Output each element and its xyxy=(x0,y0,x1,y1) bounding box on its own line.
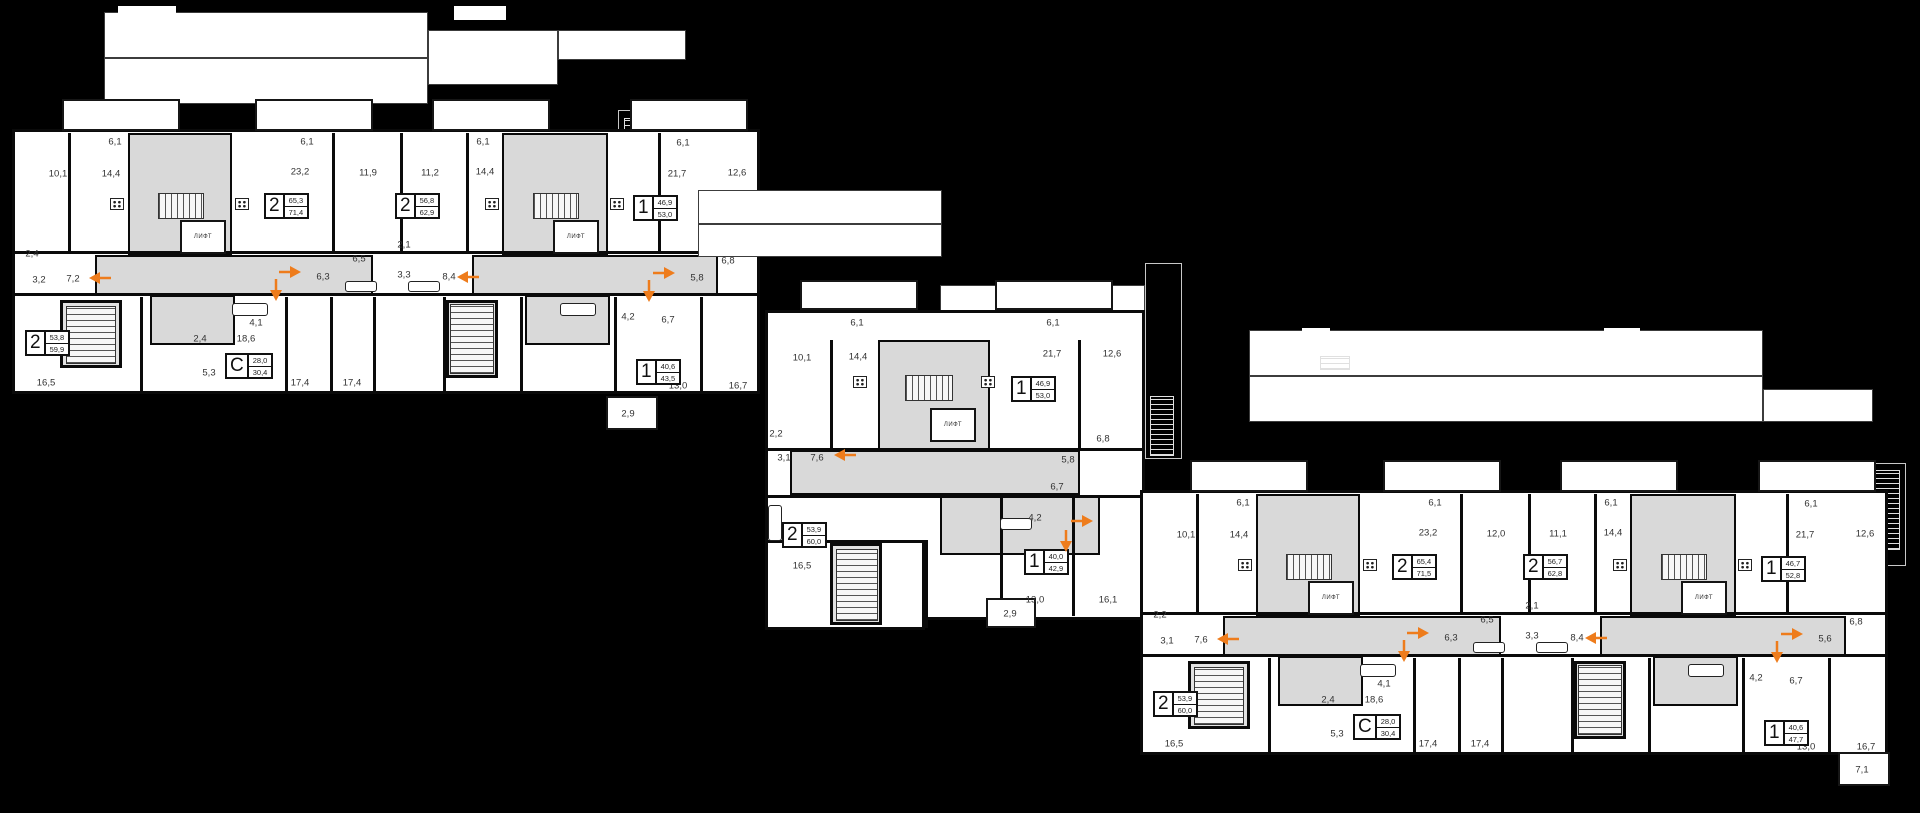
entrance-arrow-icon xyxy=(268,278,284,302)
room-area-label: 5,8 xyxy=(690,273,703,284)
balcony xyxy=(800,280,918,310)
room-area-label: 16,1 xyxy=(1099,595,1118,606)
lift-label: ЛИФТ xyxy=(1322,595,1340,601)
apartment-type: С xyxy=(227,355,247,377)
stove-icon xyxy=(1613,559,1627,571)
apartment-stat-box: 146,752,8 xyxy=(1761,556,1806,582)
room-area-label: 7,6 xyxy=(810,453,823,464)
apartment-type: 1 xyxy=(635,197,652,219)
room-area-label: 5,3 xyxy=(202,368,215,379)
bathtub-icon xyxy=(1688,664,1724,677)
stove-icon xyxy=(1238,559,1252,571)
room-area-label: 11,2 xyxy=(421,168,439,179)
wall xyxy=(1571,658,1574,755)
room-area-label: 6,7 xyxy=(1050,482,1063,493)
room-area-label: 17,4 xyxy=(343,378,362,389)
room-area-label: 4,2 xyxy=(1028,513,1041,524)
exterior-stair-ladder xyxy=(1320,356,1350,370)
roof-outline xyxy=(428,30,558,85)
wall xyxy=(1458,658,1461,755)
room-area-label: 16,5 xyxy=(793,561,812,572)
stove-icon xyxy=(981,376,995,388)
entrance-arrow-icon xyxy=(456,269,480,285)
room-area-label: 6,1 xyxy=(1046,318,1059,329)
white-bar xyxy=(454,6,506,20)
room-area-label: 4,1 xyxy=(1377,679,1390,690)
bathtub-icon xyxy=(232,303,268,316)
stairs-icon xyxy=(158,193,204,219)
wall xyxy=(1460,494,1463,614)
apartment-area-living: 28,0 xyxy=(1377,716,1400,728)
apartment-area-living: 56,8 xyxy=(416,195,439,207)
room-area-label: 7,1 xyxy=(1855,765,1868,776)
stove-icon xyxy=(485,198,499,210)
apartment-area-total: 62,8 xyxy=(1544,568,1567,579)
bathtub-icon xyxy=(560,303,596,316)
room-area-label: 23,2 xyxy=(291,167,310,178)
apartment-type: 1 xyxy=(1026,551,1043,573)
entrance-arrow-icon xyxy=(833,447,857,463)
lift-box: ЛИФТ xyxy=(1681,581,1727,615)
entrance-arrow-icon xyxy=(1584,630,1608,646)
wall xyxy=(330,297,333,394)
room-area-label: 3,2 xyxy=(32,275,45,286)
balcony xyxy=(1190,460,1308,492)
lift-label: ЛИФТ xyxy=(567,234,585,240)
room-area-label: 14,4 xyxy=(476,167,495,178)
apartment-type: 1 xyxy=(1763,558,1780,580)
stairs-icon xyxy=(836,549,878,621)
roof-outline xyxy=(1249,376,1763,422)
apartment-type: 2 xyxy=(1525,556,1542,578)
room-area-label: 12,0 xyxy=(1487,529,1506,540)
bathtub-icon xyxy=(408,281,440,292)
room-area-label: 2,2 xyxy=(769,429,782,440)
lift-box: ЛИФТ xyxy=(553,220,599,254)
room-area-label: 2,1 xyxy=(1525,601,1538,612)
room-area-label: 17,4 xyxy=(1471,739,1490,750)
balcony xyxy=(995,280,1113,310)
room-area-label: 6,8 xyxy=(721,256,734,267)
room-area-label: 17,4 xyxy=(1419,739,1438,750)
room-area-label: 16,5 xyxy=(37,378,56,389)
apartment-stat-box: 265,471,5 xyxy=(1392,554,1437,580)
roof-outline xyxy=(698,190,942,224)
stairs-icon xyxy=(905,375,953,401)
room-area-label: 2,9 xyxy=(621,409,634,420)
apartment-area-total: 52,8 xyxy=(1782,570,1805,581)
room-area-label: 17,4 xyxy=(291,378,310,389)
room-area-label: 14,4 xyxy=(849,352,868,363)
stairs-icon xyxy=(1661,554,1707,580)
apartment-area-living: 53,9 xyxy=(1174,693,1197,705)
room-area-label: 8,4 xyxy=(442,272,455,283)
room-area-label: 2,1 xyxy=(397,240,410,251)
bathtub-icon xyxy=(768,505,782,541)
stove-icon xyxy=(610,198,624,210)
room-area-label: 6,1 xyxy=(300,137,313,148)
room-area-label: 16,7 xyxy=(729,381,748,392)
lift-label: ЛИФТ xyxy=(1695,595,1713,601)
apartment-area-living: 46,7 xyxy=(1782,558,1805,570)
stove-icon xyxy=(1363,559,1377,571)
apartment-type: 2 xyxy=(27,332,44,354)
apartment-stat-box: С28,030,4 xyxy=(1353,714,1401,740)
room-area-label: 16,7 xyxy=(1857,742,1876,753)
room-area-label: 7,2 xyxy=(66,274,79,285)
apartment-stat-box: 256,762,8 xyxy=(1523,554,1568,580)
wall xyxy=(373,297,376,394)
entrance-arrow-icon xyxy=(88,270,112,286)
room-area-label: 6,1 xyxy=(850,318,863,329)
apartment-area-total: 53,0 xyxy=(1032,390,1055,401)
apartment-area-total: 53,0 xyxy=(654,209,677,220)
room-area-label: 6,5 xyxy=(352,254,365,265)
apartment-type: 2 xyxy=(1155,693,1172,715)
apartment-area-living: 40,6 xyxy=(1785,722,1808,734)
apartment-stat-box: 265,371,4 xyxy=(264,193,309,219)
stairs-icon xyxy=(1286,554,1332,580)
wall xyxy=(1786,494,1789,614)
entrance-arrow-icon xyxy=(1070,513,1094,529)
room-area-label: 2,4 xyxy=(193,334,206,345)
wall xyxy=(1594,494,1597,614)
room-area-label: 4,2 xyxy=(621,312,634,323)
common-area xyxy=(1223,616,1501,656)
room-area-label: 6,8 xyxy=(1849,617,1862,628)
room-area-label: 6,5 xyxy=(1480,615,1493,626)
white-bar xyxy=(1604,328,1640,340)
room-area-label: 14,4 xyxy=(102,169,121,180)
room-area-label: 13,0 xyxy=(1026,595,1045,606)
room-area-label: 16,5 xyxy=(1165,739,1184,750)
room-area-label: 10,1 xyxy=(49,169,68,180)
room-area-label: 7,6 xyxy=(1194,635,1207,646)
wall xyxy=(830,340,833,448)
room-area-label: 3,1 xyxy=(1160,636,1173,647)
room-area-label: 18,6 xyxy=(237,334,256,345)
apartment-area-living: 40,6 xyxy=(657,361,680,373)
room-area-label: 6,1 xyxy=(1804,499,1817,510)
room-area-label: 12,6 xyxy=(1856,529,1875,540)
roof-outline xyxy=(104,58,428,104)
apartment-stat-box: С28,030,4 xyxy=(225,353,273,379)
lift-box: ЛИФТ xyxy=(930,408,976,442)
wall xyxy=(1648,658,1651,755)
stairs-icon xyxy=(66,306,116,364)
apartment-stat-box: 253,960,0 xyxy=(782,522,827,548)
wall xyxy=(658,133,661,253)
room-area-label: 6,1 xyxy=(476,137,489,148)
wall xyxy=(1140,612,1888,615)
white-bar xyxy=(1302,328,1330,341)
room-area-label: 3,1 xyxy=(777,453,790,464)
apartment-type: 1 xyxy=(1013,378,1030,400)
room-area-label: 2,9 xyxy=(1003,609,1016,620)
lift-box: ЛИФТ xyxy=(1308,581,1354,615)
roof-outline xyxy=(1763,389,1873,422)
apartment-area-total: 59,9 xyxy=(46,344,69,355)
entrance-arrow-icon xyxy=(1396,639,1412,663)
bathtub-icon xyxy=(1000,518,1032,530)
apartment-type: 1 xyxy=(638,361,655,383)
room-area-label: 2,2 xyxy=(1153,610,1166,621)
room-area-label: 2,4 xyxy=(1321,695,1334,706)
apartment-type: 2 xyxy=(784,524,801,546)
apartment-type: 1 xyxy=(1766,722,1783,744)
room-area-label: 6,7 xyxy=(1789,676,1802,687)
balcony xyxy=(1758,460,1876,492)
common-area xyxy=(472,255,718,295)
balcony xyxy=(630,99,748,131)
room-area-label: 10,1 xyxy=(793,353,812,364)
wall xyxy=(140,297,143,394)
room-area-label: 5,8 xyxy=(1061,455,1074,466)
apartment-area-living: 65,4 xyxy=(1413,556,1436,568)
room-area-label: 6,3 xyxy=(1444,633,1457,644)
entrance-arrow-icon xyxy=(1216,631,1240,647)
entrance-arrow-icon xyxy=(641,279,657,303)
apartment-area-total: 62,9 xyxy=(416,207,439,218)
room-area-label: 23,2 xyxy=(1419,528,1438,539)
apartment-area-total: 71,4 xyxy=(285,207,308,218)
room-area-label: 21,7 xyxy=(1796,530,1815,541)
apartment-type: 2 xyxy=(1394,556,1411,578)
wall xyxy=(1268,658,1271,755)
stove-icon xyxy=(853,376,867,388)
floor-plan-canvas: ЛИФТЛИФТ6,110,114,46,123,211,911,26,114,… xyxy=(0,0,1920,813)
room-area-label: 10,1 xyxy=(1177,530,1196,541)
apartment-stat-box: 140,647,7 xyxy=(1764,720,1809,746)
entrance-arrow-icon xyxy=(1058,529,1074,553)
room-area-label: 14,4 xyxy=(1604,528,1623,539)
roof-outline xyxy=(698,224,942,257)
room-area-label: 6,8 xyxy=(1096,434,1109,445)
apartment-area-total: 42,9 xyxy=(1045,563,1068,574)
balcony xyxy=(432,99,550,131)
apartment-area-living: 28,0 xyxy=(249,355,272,367)
room-area-label: 4,1 xyxy=(249,318,262,329)
room-area-label: 3,3 xyxy=(397,270,410,281)
apartment-area-total: 30,4 xyxy=(1377,728,1400,739)
roof-outline xyxy=(558,30,686,60)
wall xyxy=(765,448,1145,451)
wall xyxy=(925,540,928,628)
wall xyxy=(466,133,469,253)
apartment-stat-box: 140,643,5 xyxy=(636,359,681,385)
room-area-label: 12,6 xyxy=(1103,349,1122,360)
room-area-label: 6,1 xyxy=(108,137,121,148)
room-area-label: 21,7 xyxy=(1043,349,1062,360)
wall xyxy=(285,297,288,394)
apartment-area-total: 30,4 xyxy=(249,367,272,378)
white-bar xyxy=(118,6,176,20)
lift-box: ЛИФТ xyxy=(180,220,226,254)
room-area-label: 2,4 xyxy=(25,249,38,260)
room-area-label: 6,1 xyxy=(1428,498,1441,509)
stove-icon xyxy=(110,198,124,210)
lift-label: ЛИФТ xyxy=(944,422,962,428)
apartment-type: С xyxy=(1355,716,1375,738)
stairs-icon xyxy=(450,304,494,374)
room-area-label: 5,6 xyxy=(1818,634,1831,645)
exterior-stair-ladder xyxy=(1150,396,1174,456)
apartment-stat-box: 256,862,9 xyxy=(395,193,440,219)
room-area-label: 18,6 xyxy=(1365,695,1384,706)
apartment-stat-box: 146,953,0 xyxy=(1011,376,1056,402)
wall xyxy=(1742,658,1745,755)
common-area xyxy=(1600,616,1846,656)
room-area-label: 11,9 xyxy=(359,168,377,179)
wall xyxy=(520,297,523,394)
room-area-label: 6,1 xyxy=(676,138,689,149)
apartment-area-living: 56,7 xyxy=(1544,556,1567,568)
wall xyxy=(1828,658,1831,755)
wall xyxy=(614,297,617,394)
apartment-area-living: 46,9 xyxy=(654,197,677,209)
room-area-label: 5,3 xyxy=(1330,729,1343,740)
balcony xyxy=(255,99,373,131)
apartment-area-total: 47,7 xyxy=(1785,734,1808,745)
apartment-area-living: 53,9 xyxy=(803,524,826,536)
stairs-icon xyxy=(1194,667,1244,725)
stove-icon xyxy=(235,198,249,210)
wall xyxy=(1501,658,1504,755)
stove-icon xyxy=(1738,559,1752,571)
wall xyxy=(700,297,703,394)
room-area-label: 3,3 xyxy=(1525,631,1538,642)
bathtub-icon xyxy=(345,281,377,292)
wall xyxy=(1078,340,1081,448)
room-area-label: 11,1 xyxy=(1549,529,1567,540)
room-area-label: 6,7 xyxy=(661,315,674,326)
bathtub-icon xyxy=(1360,664,1396,677)
wall xyxy=(765,495,1145,498)
room-area-label: 4,2 xyxy=(1749,673,1762,684)
entrance-arrow-icon xyxy=(1769,640,1785,664)
apartment-area-total: 71,5 xyxy=(1413,568,1436,579)
wall xyxy=(443,297,446,394)
apartment-area-living: 46,9 xyxy=(1032,378,1055,390)
room-area-label: 8,4 xyxy=(1570,633,1583,644)
apartment-area-total: 60,0 xyxy=(803,536,826,547)
apartment-stat-box: 253,859,9 xyxy=(25,330,70,356)
apartment-stat-box: 146,953,0 xyxy=(633,195,678,221)
apartment-type: 2 xyxy=(266,195,283,217)
wall xyxy=(12,251,760,254)
lift-label: ЛИФТ xyxy=(194,234,212,240)
room-area-label: 6,1 xyxy=(1236,498,1249,509)
wall xyxy=(1196,494,1199,614)
wall xyxy=(68,133,71,253)
apartment-area-total: 43,5 xyxy=(657,373,680,384)
balcony xyxy=(62,99,180,131)
wall xyxy=(1413,658,1416,755)
balcony xyxy=(1383,460,1501,492)
apartment-area-total: 60,0 xyxy=(1174,705,1197,716)
bathtub-icon xyxy=(1473,642,1505,653)
balcony xyxy=(1560,460,1678,492)
wall xyxy=(332,133,335,253)
apartment-area-living: 53,8 xyxy=(46,332,69,344)
room-area-label: 14,4 xyxy=(1230,530,1249,541)
apartment-area-living: 65,3 xyxy=(285,195,308,207)
common-area xyxy=(95,255,373,295)
apartment-stat-box: 253,960,0 xyxy=(1153,691,1198,717)
room-area-label: 21,7 xyxy=(668,169,687,180)
apartment-type: 2 xyxy=(397,195,414,217)
room-area-label: 6,1 xyxy=(1604,498,1617,509)
stairs-icon xyxy=(1578,665,1622,735)
room-area-label: 12,6 xyxy=(728,168,747,179)
stairs-icon xyxy=(533,193,579,219)
bathtub-icon xyxy=(1536,642,1568,653)
room-area-label: 6,3 xyxy=(316,272,329,283)
